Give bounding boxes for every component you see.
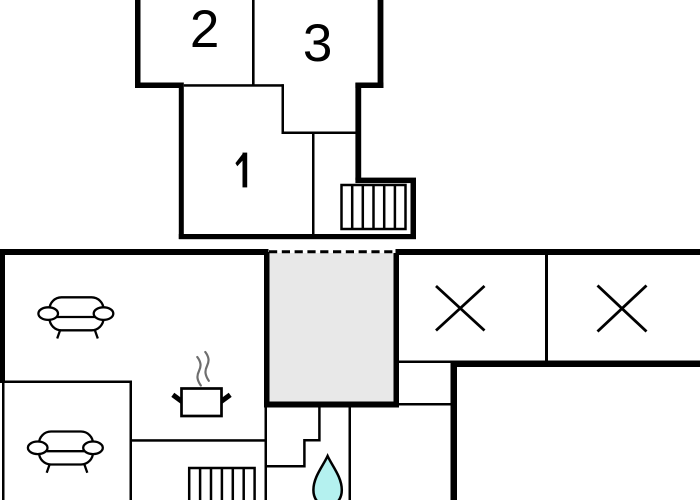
svg-text:2: 2 [190,0,219,59]
svg-text:3: 3 [303,14,332,73]
